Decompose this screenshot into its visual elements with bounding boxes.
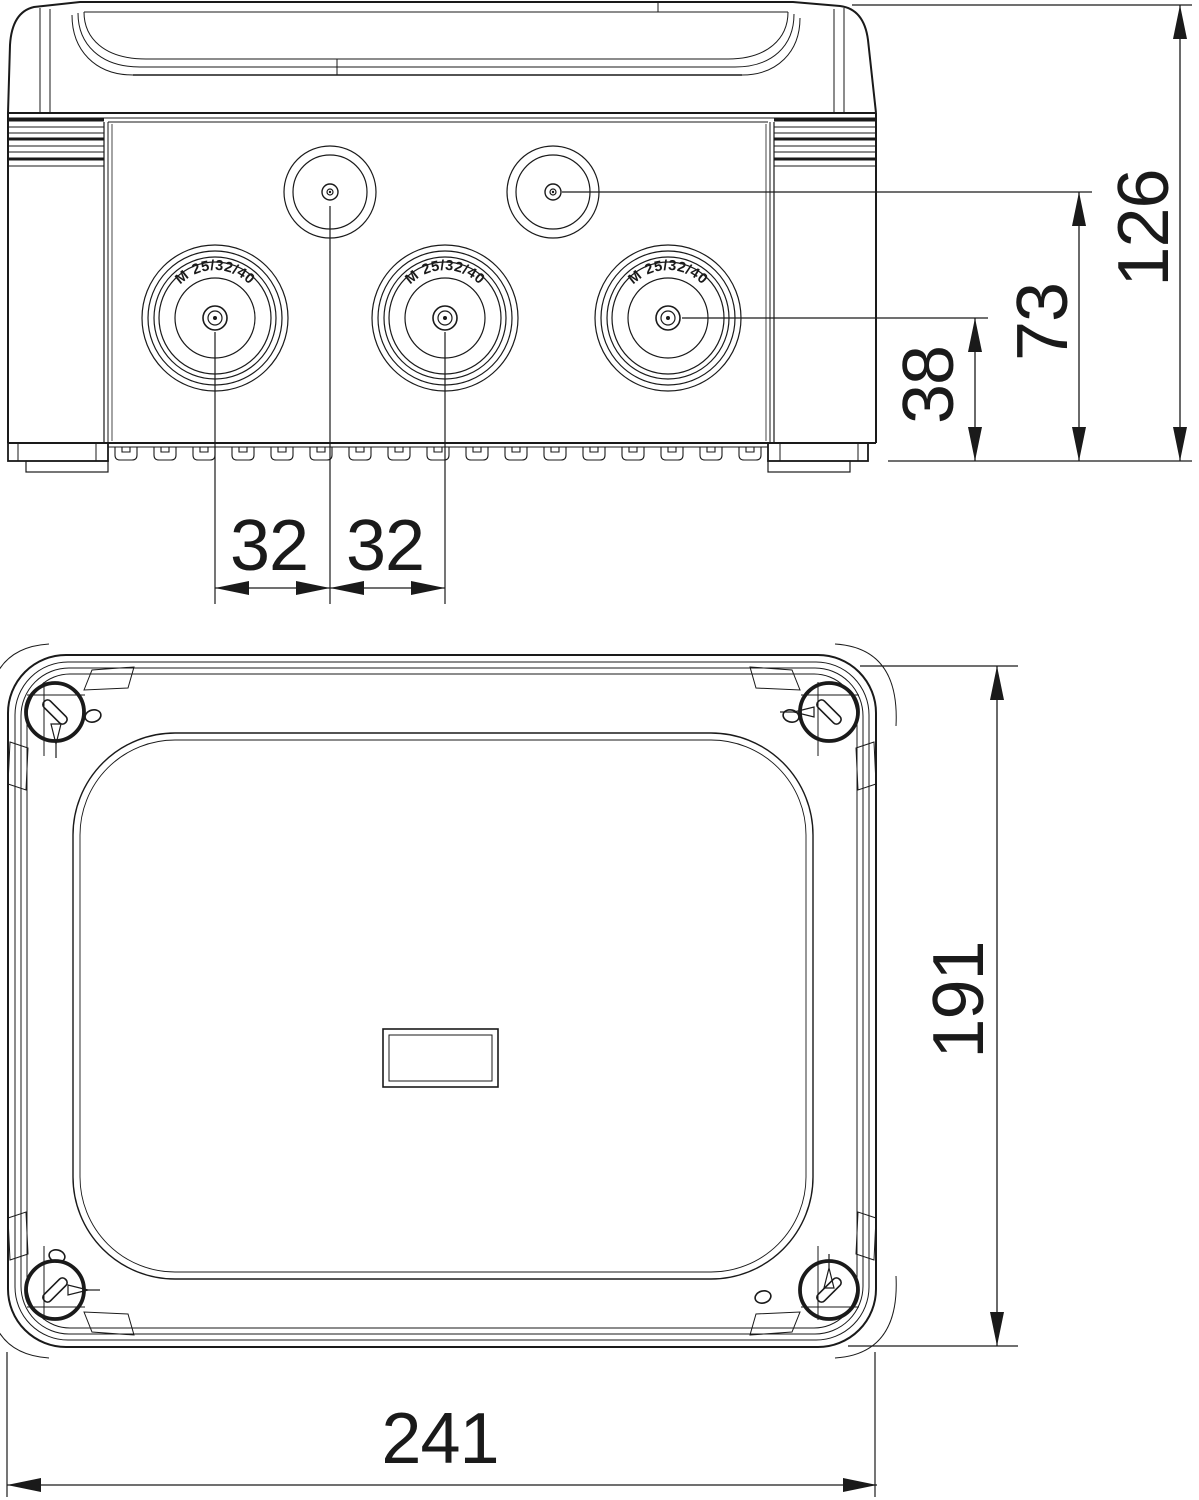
- drawing-page: M 25/32/40: [0, 0, 1199, 1500]
- side-wall-ribs-right: [774, 120, 876, 166]
- corner-screw-bottom-left: [26, 1246, 85, 1320]
- dimension-box-depth: 191: [919, 666, 1004, 1346]
- bottom-clip-row: [8, 443, 876, 460]
- dimension-box-width: 241: [7, 1399, 877, 1492]
- side-wall-ribs-left: [8, 120, 104, 166]
- bottom-view: [0, 644, 896, 1358]
- latch-tabs: [8, 667, 876, 1335]
- screw-seal-ovals: [48, 708, 801, 1305]
- dimension-label-191: 191: [919, 941, 999, 1058]
- orientation-markers: [51, 707, 834, 1295]
- side-view: [8, 2, 876, 472]
- dimension-label-32a: 32: [230, 506, 308, 586]
- corner-bulge-arcs: [0, 644, 896, 1358]
- dimension-label-241: 241: [381, 1399, 498, 1479]
- type-label-plate: [383, 1029, 498, 1087]
- dimension-knockout-spacing-b: 32: [330, 506, 445, 595]
- drawing-canvas: M 25/32/40: [0, 0, 1199, 1500]
- dimension-knockout-spacing-a: 32: [215, 506, 330, 595]
- lid-recess-panel: [73, 733, 813, 1279]
- extension-lines: [7, 5, 1192, 1497]
- corner-screw-top-right: [800, 682, 859, 756]
- dimension-label-38: 38: [889, 346, 969, 424]
- dimension-label-73: 73: [1003, 283, 1083, 361]
- foot-left: [8, 443, 108, 472]
- dimension-small-knockout-height: 73: [1003, 192, 1086, 461]
- foot-right: [768, 443, 868, 472]
- side-view-lid: [8, 2, 876, 113]
- dimension-label-126: 126: [1104, 169, 1184, 286]
- dimension-overall-height: 126: [1104, 5, 1187, 461]
- dimension-label-32b: 32: [346, 506, 424, 586]
- lid-outline: [8, 655, 876, 1347]
- dimension-large-knockout-height: 38: [889, 318, 982, 461]
